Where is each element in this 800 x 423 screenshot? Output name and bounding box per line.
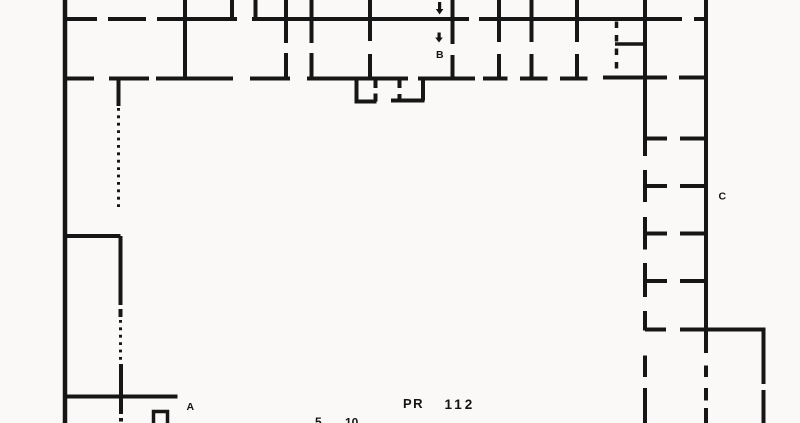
svg-text:112: 112 [445,397,476,412]
svg-text:C: C [719,191,727,203]
svg-text:A: A [187,401,195,413]
svg-text:B: B [436,49,444,61]
svg-text:5: 5 [315,415,322,423]
svg-text:PR: PR [403,396,424,411]
svg-text:10: 10 [345,416,359,423]
